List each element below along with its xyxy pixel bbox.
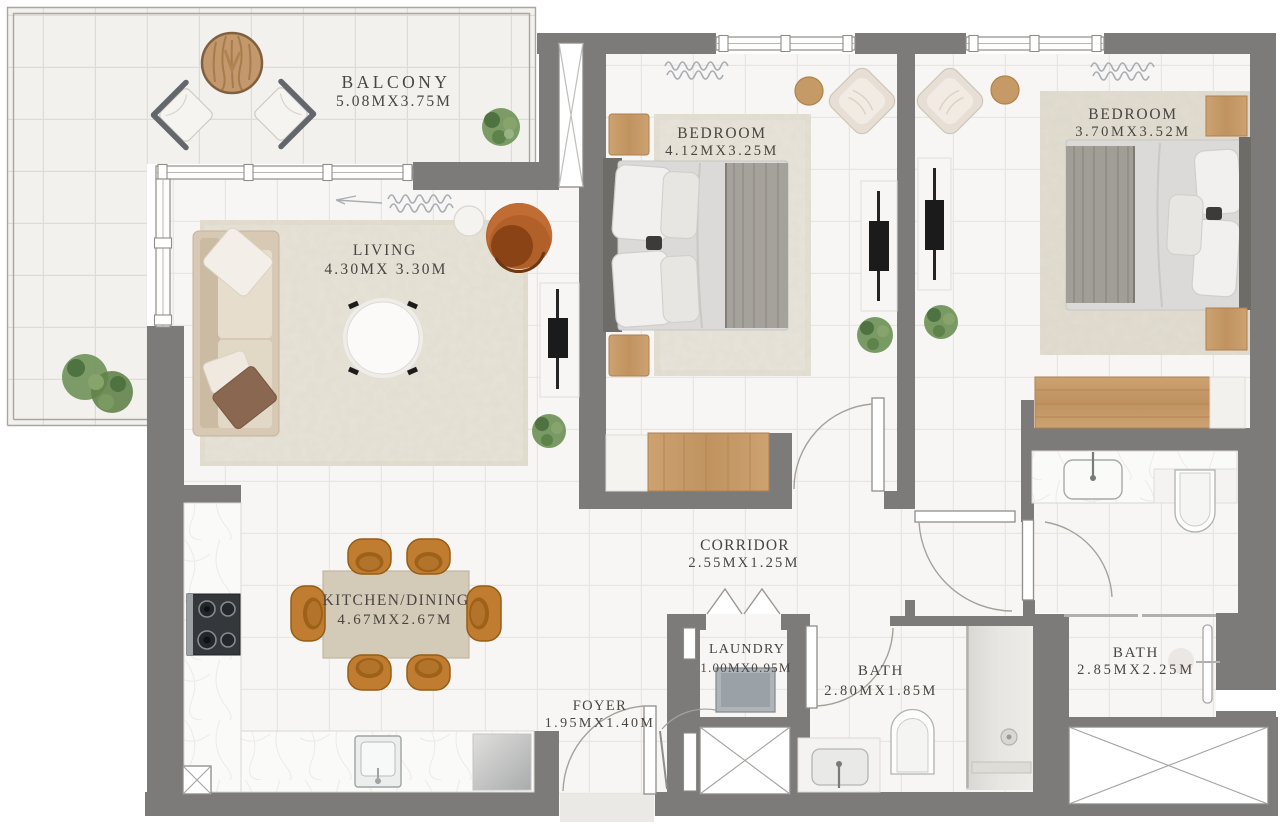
svg-text:5.08MX3.75M: 5.08MX3.75M	[336, 93, 452, 110]
svg-text:2.85MX2.25M: 2.85MX2.25M	[1077, 662, 1195, 678]
svg-text:4.12MX3.25M: 4.12MX3.25M	[665, 143, 778, 159]
svg-text:FOYER: FOYER	[573, 698, 628, 714]
svg-text:CORRIDOR: CORRIDOR	[700, 537, 790, 554]
svg-text:3.70MX3.52M: 3.70MX3.52M	[1075, 124, 1191, 140]
svg-text:BATH: BATH	[858, 663, 904, 679]
svg-text:1.00MX0.95M: 1.00MX0.95M	[700, 660, 791, 675]
svg-text:2.80MX1.85M: 2.80MX1.85M	[824, 683, 937, 699]
svg-text:BATH: BATH	[1113, 645, 1159, 661]
svg-text:LAUNDRY: LAUNDRY	[709, 642, 785, 657]
svg-text:1.95MX1.40M: 1.95MX1.40M	[545, 716, 655, 731]
svg-text:2.55MX1.25M: 2.55MX1.25M	[688, 555, 799, 571]
svg-text:BALCONY: BALCONY	[341, 72, 450, 92]
svg-text:BEDROOM: BEDROOM	[677, 125, 766, 142]
svg-text:4.30MX 3.30M: 4.30MX 3.30M	[324, 261, 447, 278]
svg-text:4.67MX2.67M: 4.67MX2.67M	[337, 612, 452, 628]
svg-text:LIVING: LIVING	[353, 242, 417, 259]
svg-text:BEDROOM: BEDROOM	[1088, 106, 1177, 123]
svg-text:KITCHEN/DINING: KITCHEN/DINING	[322, 592, 469, 609]
